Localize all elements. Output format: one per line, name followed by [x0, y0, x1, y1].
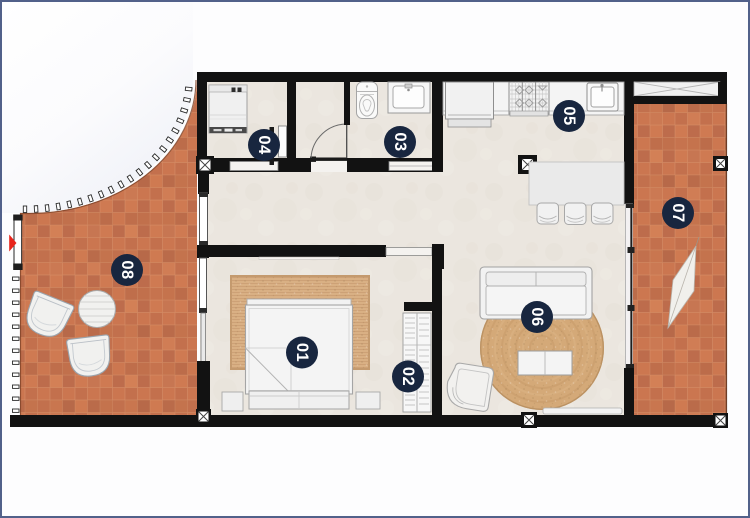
svg-text:02: 02: [399, 367, 417, 386]
svg-text:01: 01: [293, 343, 311, 362]
svg-text:07: 07: [669, 203, 687, 222]
svg-text:06: 06: [528, 307, 546, 326]
svg-text:03: 03: [391, 132, 409, 151]
svg-text:08: 08: [118, 260, 136, 279]
svg-text:05: 05: [560, 106, 578, 125]
svg-text:04: 04: [255, 135, 273, 155]
